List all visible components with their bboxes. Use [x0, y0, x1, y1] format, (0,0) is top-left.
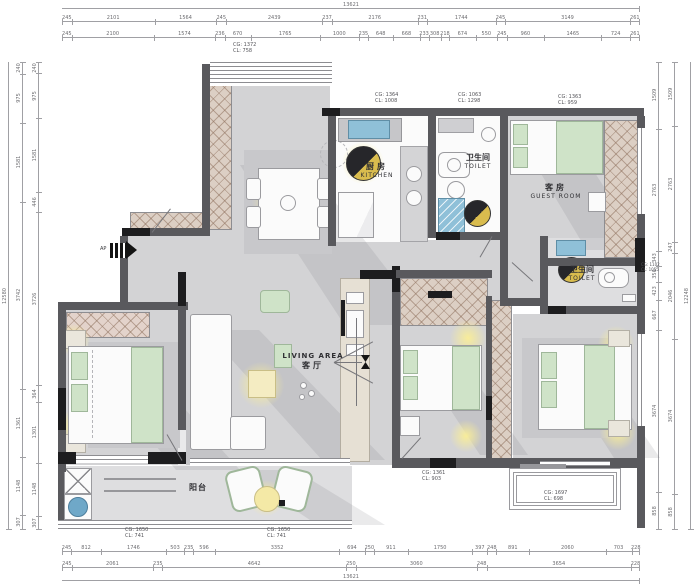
- entry-arrow-head: [126, 241, 137, 259]
- wall-dining-left: [202, 64, 210, 236]
- wall-toilet-guest: [500, 116, 508, 266]
- toilet-right-label-en: TOILET: [569, 275, 596, 283]
- annotation-balcony-left: CG: 1650 CL: 741: [125, 527, 148, 540]
- guest-pillow: [513, 124, 528, 145]
- dim-value: 1574: [178, 32, 191, 37]
- annotation-bay-bottom: CG: 1697 CL: 698: [544, 490, 567, 503]
- wall-tv-top-black: [360, 270, 400, 279]
- kitchen-fridge: [338, 192, 374, 238]
- toilet-right-sink: [556, 240, 586, 256]
- dim-value: 231: [417, 16, 427, 21]
- wall-entry-black: [122, 228, 150, 236]
- kitchen-label-zh: 厨房: [366, 162, 388, 172]
- master-pillow: [71, 384, 88, 412]
- guest-room-label: 客房 GUEST ROOM: [519, 183, 593, 201]
- dim-value: 1465: [566, 32, 579, 37]
- dim-value: 3060: [410, 562, 423, 567]
- dim-bottom-row1: 2458121746503235596335269425091117503972…: [62, 551, 640, 552]
- dim-value: 397: [475, 546, 485, 551]
- living-armchair: [260, 290, 290, 313]
- living-deco-dot: [308, 390, 315, 397]
- annotation-line: CL: 741: [267, 533, 290, 539]
- annotation-line: CL: 741: [125, 533, 148, 539]
- dim-value: 2176: [368, 16, 381, 21]
- wall-toilet-right-bottom-black: [548, 306, 566, 314]
- wall-kitchen-toilet: [428, 116, 436, 238]
- kitchen-label-en: KITCHEN: [361, 172, 394, 180]
- guest-window: [637, 128, 645, 214]
- wall-toilet-top-bottom-black: [436, 232, 460, 240]
- tv-shelf: [346, 292, 364, 304]
- balcony-label-zh: 阳台: [189, 483, 207, 493]
- wall-bedrooms-bottom-black: [430, 458, 456, 468]
- dim-value: 911: [386, 546, 396, 551]
- dim-value: 2100: [106, 32, 119, 37]
- dim-value: 446: [33, 197, 38, 207]
- toilet-top-label-en: TOILET: [465, 163, 492, 171]
- dim-value: 1581: [33, 149, 38, 162]
- sofa-main: [190, 314, 232, 450]
- dim-value: 1509: [669, 87, 674, 100]
- bedroom2-light-bottom: [450, 420, 482, 452]
- dim-value: 703: [614, 546, 624, 551]
- entry-label: AP: [100, 246, 106, 252]
- dim-value: 1750: [434, 546, 447, 551]
- annotation-line: CL: 1008: [375, 98, 398, 104]
- dim-value: 245: [62, 562, 72, 567]
- guest-blanket: [556, 121, 603, 174]
- dim-left-total: 12580: [8, 62, 9, 530]
- annotation-line: CL: 758: [233, 48, 256, 54]
- kitchen-appliance: [406, 190, 422, 206]
- bedroom3-nightstand-bottom: [608, 420, 630, 437]
- dim-value: 236: [215, 32, 225, 37]
- bedroom2-pillow: [403, 350, 418, 374]
- dim-right-row1: 150927633433564236673674858: [658, 62, 659, 530]
- dim-value: 1148: [17, 480, 22, 493]
- dim-top-row2: 2452100157423667017651000235648668233308…: [62, 37, 640, 38]
- bedroom3-nightstand-top: [608, 330, 630, 347]
- dim-value: 1301: [33, 426, 38, 439]
- annotation-toilet-top: CG: 1063 CL: 1298: [458, 92, 481, 105]
- dim-value: 1765: [279, 32, 292, 37]
- dim-value: 364: [33, 389, 38, 399]
- dim-value: 308: [430, 32, 440, 37]
- toilet-right-label-zh: 卫生间: [570, 265, 594, 275]
- washing-machine: [64, 468, 92, 494]
- dim-value: 668: [402, 32, 412, 37]
- toilet-top-wall-light: [481, 127, 496, 142]
- dim-left-row2: 2409751581446372636413011148307: [38, 62, 39, 530]
- dim-value: 3149: [561, 16, 574, 21]
- dim-value: 674: [458, 32, 468, 37]
- dim-right-total-label: 12248: [685, 288, 690, 304]
- dim-value: 237: [322, 16, 332, 21]
- dim-value: 1148: [33, 483, 38, 496]
- dim-value: 245: [496, 16, 506, 21]
- guest-room-label-en: GUEST ROOM: [530, 193, 581, 201]
- annotation-kitchen: CG: 1364 CL: 1008: [375, 92, 398, 105]
- dim-value: 2439: [268, 16, 281, 21]
- dim-bottom-total-label: 13621: [343, 575, 359, 580]
- toilet-top-bowl: [447, 181, 465, 199]
- dim-value: 235: [184, 546, 194, 551]
- guest-room-label-zh: 客房: [545, 183, 567, 193]
- dim-value: 1564: [179, 16, 192, 21]
- bedroom2-tv: [428, 291, 452, 298]
- dim-value: 1509: [653, 89, 658, 102]
- annotation-line: CL: 959: [558, 100, 581, 106]
- annotation-line: CL: 698: [544, 496, 567, 502]
- dim-value: 975: [17, 94, 22, 104]
- dim-top-total: 13621: [62, 8, 640, 9]
- bedroom2-blanket: [452, 346, 480, 410]
- dim-value: 960: [521, 32, 531, 37]
- dim-value: 724: [611, 32, 621, 37]
- entry-arrow-icon: [110, 243, 126, 258]
- dim-left-row1: 2409751581374213611148307: [22, 62, 23, 530]
- living-balcony-sliding-door: [190, 458, 350, 466]
- bedroom3-pillow: [541, 381, 557, 408]
- annotation-line: CL: 1298: [458, 98, 481, 104]
- toilet-right-accessory: [622, 294, 636, 302]
- tv-screen: [341, 300, 345, 336]
- wall-living-separator-black: [178, 272, 186, 306]
- annotation-balcony-right: CG: 1650 CL: 741: [267, 527, 290, 540]
- dim-value: 3674: [653, 405, 658, 418]
- dim-top-total-label: 13621: [343, 3, 359, 8]
- wall-bedroom23: [486, 296, 492, 466]
- dim-value: 240: [17, 63, 22, 73]
- wall-top-main: [330, 108, 644, 116]
- dim-value: 307: [33, 518, 38, 528]
- dim-value: 1000: [333, 32, 346, 37]
- dim-value: 245: [62, 32, 72, 37]
- hallway-wardrobe: [490, 300, 512, 460]
- dim-value: 2763: [669, 178, 674, 191]
- dim-value: 3352: [271, 546, 284, 551]
- tv-shelf: [346, 310, 364, 338]
- drying-rack-bar: [104, 490, 176, 492]
- dim-value: 667: [653, 310, 658, 320]
- dim-value: 235: [153, 562, 163, 567]
- bedroom3-pillow: [541, 352, 557, 379]
- dim-value: 2101: [107, 16, 120, 21]
- dim-value: 261: [630, 32, 640, 37]
- dim-value: 2060: [561, 546, 574, 551]
- dim-value: 1746: [127, 546, 140, 551]
- toilet-top-shelf: [438, 118, 474, 133]
- dim-value: 858: [669, 507, 674, 517]
- annotation-dining: CG: 1372 CL: 758: [233, 42, 256, 55]
- wall-master-top: [58, 302, 188, 310]
- annotation-line: CL: 1055: [641, 267, 660, 272]
- dim-value: 247: [669, 243, 674, 253]
- wall-corridor-bottom: [500, 298, 548, 306]
- dim-bottom-total: 13621: [62, 580, 640, 581]
- master-pillow: [71, 352, 88, 380]
- dim-value: 596: [199, 546, 209, 551]
- kitchen-label: 厨房 KITCHEN: [342, 162, 412, 180]
- wall-bedroom23-black: [486, 396, 492, 420]
- dim-value: 975: [33, 91, 38, 101]
- dim-value: 250: [346, 562, 356, 567]
- wall-bedroom2-left: [392, 280, 400, 466]
- balcony-label: 阳台: [182, 483, 214, 493]
- dim-value: 250: [365, 546, 375, 551]
- dim-bottom-row2: 2452061235464225030602483654228: [62, 567, 640, 568]
- toilet-top-shower: [438, 198, 465, 233]
- annotation-line: CL: 903: [422, 476, 445, 482]
- balcony-round-table: [254, 486, 280, 512]
- annotation-bedroom-mid: CG: 1361 CL: 903: [422, 470, 445, 483]
- dim-value: 1744: [455, 16, 468, 21]
- balcony-railing: [58, 520, 352, 532]
- master-blanket: [131, 347, 163, 443]
- dim-value: 3674: [669, 410, 674, 423]
- dim-value: 891: [508, 546, 518, 551]
- floor-plan-canvas: 13621 2452101156424524392372176231174424…: [0, 0, 700, 585]
- living-label-en: LIVING AREA: [282, 352, 343, 361]
- living-label-zh: 客厅: [302, 361, 324, 371]
- dim-right-total: 12248: [690, 62, 691, 530]
- dim-value: 648: [376, 32, 386, 37]
- dim-value: 423: [653, 286, 658, 296]
- wall-top-black: [322, 108, 340, 116]
- dim-value: 3654: [552, 562, 565, 567]
- coffee-table: [248, 370, 276, 398]
- living-level-line: [356, 318, 357, 406]
- living-area-label: LIVING AREA 客厅: [282, 352, 344, 371]
- dim-value: 1361: [17, 417, 22, 430]
- dining-chair: [246, 206, 261, 228]
- kitchen-sink: [348, 120, 390, 139]
- toilet-right-label: 卫生间 TOILET: [556, 265, 608, 283]
- wall-bedroom2-top: [396, 270, 492, 278]
- dim-value: 235: [359, 32, 369, 37]
- toilet-top-basin-dark: [464, 200, 491, 227]
- dim-value: 858: [653, 506, 658, 516]
- dim-value: 261: [630, 16, 640, 21]
- dining-chair: [246, 178, 261, 200]
- bedroom3-window: [637, 334, 645, 426]
- dim-value: 240: [33, 63, 38, 73]
- toilet-top-label-zh: 卫生间: [466, 153, 490, 163]
- annotation-toilet-right: CG: 1102 CL: 1055: [641, 262, 660, 272]
- dim-value: 307: [17, 518, 22, 528]
- dim-value: 4642: [248, 562, 261, 567]
- master-window: [76, 455, 148, 463]
- dining-bay-window: [210, 62, 332, 86]
- dim-value: 245: [62, 546, 72, 551]
- dining-plate: [280, 195, 296, 211]
- dim-top-row1: 2452101156424524392372176231174424531492…: [62, 21, 640, 22]
- dim-value: 812: [81, 546, 91, 551]
- bedroom2-wardrobe: [400, 278, 488, 326]
- dim-value: 2061: [106, 562, 119, 567]
- dim-value: 670: [233, 32, 243, 37]
- dim-value: 245: [497, 32, 507, 37]
- wall-master-left-black: [58, 388, 66, 430]
- annotation-guest: CG: 1363 CL: 959: [558, 94, 581, 107]
- bedroom2-nightstand: [400, 416, 420, 436]
- dim-value: 3742: [17, 289, 22, 302]
- dim-left-total-label: 12580: [3, 288, 8, 304]
- living-deco-dot: [300, 382, 307, 389]
- dim-value: 1581: [17, 156, 22, 169]
- guest-wardrobe: [604, 120, 639, 258]
- toilet-top-label: 卫生间 TOILET: [453, 153, 503, 171]
- drying-rack-bar: [104, 478, 176, 480]
- dim-right-row2: 1509276324720463674858: [674, 62, 675, 530]
- wall-master-bottom-black-l: [58, 452, 76, 464]
- dim-value: 694: [347, 546, 357, 551]
- living-deco-dot: [299, 394, 305, 400]
- dim-value: 2046: [669, 289, 674, 302]
- balcony-marker: [279, 500, 285, 506]
- dim-value: 503: [170, 546, 180, 551]
- dim-value: 550: [482, 32, 492, 37]
- bedroom2-pillow: [403, 376, 418, 400]
- bedroom3-blanket: [584, 345, 615, 429]
- guest-pillow: [513, 147, 528, 168]
- dim-value: 228: [631, 546, 641, 551]
- dim-value: 248: [477, 562, 487, 567]
- wall-kitchen-separator: [328, 116, 336, 246]
- dim-value: 228: [631, 562, 641, 567]
- dim-value: 245: [62, 16, 72, 21]
- dim-value: 3726: [33, 292, 38, 305]
- dim-value: 248: [487, 546, 497, 551]
- wall-balcony-left: [58, 466, 64, 526]
- dim-value: 245: [216, 16, 226, 21]
- master-bed-fold: [92, 350, 93, 438]
- balcony-sink: [68, 497, 88, 517]
- sofa-chaise: [230, 416, 266, 450]
- dim-value: 2763: [653, 183, 658, 196]
- dim-value: 233: [419, 32, 429, 37]
